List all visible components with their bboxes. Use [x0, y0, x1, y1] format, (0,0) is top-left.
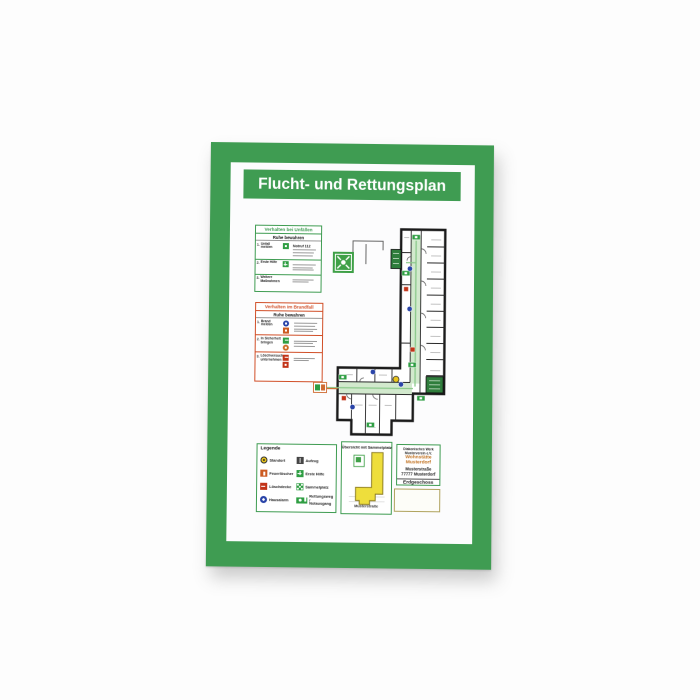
row-number: 3. — [257, 354, 260, 362]
legend-label: Rettungsweg /Notausgang — [309, 494, 333, 506]
text-line-placeholder — [294, 331, 314, 332]
street-label: Musterstraße — [354, 504, 378, 508]
text-line-placeholder — [293, 357, 314, 358]
standort-marker — [393, 376, 399, 382]
fire-extinguisher-icon — [283, 355, 289, 361]
row-number: 1. — [257, 320, 260, 328]
emergency-exit-icon — [283, 338, 289, 344]
row-label: Erste Hilfe — [261, 261, 277, 265]
assembly-point-mini-icon — [355, 457, 360, 462]
legend-label: Hausalarm — [269, 498, 289, 502]
facility-city: 77777 Musterdorf — [401, 471, 435, 477]
legend-item-hausalarm: Hausalarm — [260, 493, 293, 507]
text-line-placeholder — [293, 360, 309, 361]
text-line-placeholder — [293, 249, 316, 250]
neighbor-building-outline — [353, 241, 383, 264]
stairs-right — [426, 377, 443, 393]
empty-annotation-box — [394, 488, 441, 512]
product-photo-escape-plan: { "frame": { "title": "Flucht- und Rettu… — [0, 0, 700, 700]
row-label: Löschversuch unternehmen — [261, 354, 284, 362]
legend-label-line1: Rettungsweg / — [309, 494, 333, 502]
overview-box: Übersicht mit Sammelplatz Musterstraße — [340, 441, 392, 515]
text-line-placeholder — [293, 282, 309, 283]
row-number: 2. — [257, 261, 260, 265]
alarm-button-icon — [283, 320, 289, 326]
fire-blanket-icon — [260, 483, 267, 490]
elevator-icon — [296, 457, 303, 464]
direction-icon — [283, 345, 289, 351]
plan-title-banner: Flucht- und Rettungsplan — [243, 169, 460, 201]
stairs-left — [391, 249, 401, 268]
location-marker-icon — [260, 456, 267, 463]
legend-item-feuerloescher: Feuerlöscher — [260, 467, 293, 481]
row-number: 1. — [257, 242, 260, 250]
row-number: 3. — [256, 276, 259, 284]
fire-extinguisher-icon — [260, 470, 267, 477]
row-number: 2. — [257, 337, 260, 345]
text-line-placeholder — [293, 343, 313, 344]
fire-extinguisher-icon — [283, 362, 289, 368]
legend-label: Feuerlöscher — [269, 471, 293, 475]
legend-label: Löschdecke — [269, 484, 291, 488]
first-aid-cross-icon — [283, 261, 289, 267]
site-info-box: Diakonisches Werk Musterverein e.V. Wohn… — [396, 444, 441, 486]
assembly-point-sign — [333, 252, 354, 273]
text-line-placeholder — [293, 270, 314, 271]
legend-item-rettungsweg: Rettungsweg /Notausgang — [296, 493, 333, 507]
legend-label: Aufzug — [306, 458, 319, 462]
house-alarm-icon — [260, 496, 267, 503]
accident-instructions-box: Verhalten bei Unfällen Ruhe bewahren 1.U… — [254, 225, 322, 293]
row-label: Unfall melden — [261, 242, 281, 250]
row-label: In Sicherheit bringen — [261, 337, 281, 345]
text-line-placeholder — [293, 255, 313, 256]
floor-label: Erdgeschoss — [397, 478, 439, 486]
phone-green-icon — [283, 243, 289, 249]
accident-row-3: 3.Weitere Maßnahmen — [255, 273, 320, 286]
legend-label: Standort — [269, 458, 285, 462]
row-label: Weitere Maßnahmen — [260, 276, 280, 284]
legend-item-sammelplatz: Sammelplatz — [296, 480, 333, 494]
legend-grid: Standort Aufzug Feuerlöscher Erste Hilfe… — [260, 453, 333, 507]
first-aid-icon — [296, 470, 303, 477]
assembly-point-icon — [296, 483, 303, 490]
text-line-placeholder — [293, 346, 314, 347]
site-overview-map — [344, 449, 389, 506]
legend-title: Legende — [261, 446, 333, 452]
accident-row-1: 1.Unfall melden Notruf 112 — [256, 241, 321, 260]
text-line-placeholder — [293, 264, 316, 265]
duraframe-green-frame: Flucht- und Rettungsplan Verhalten bei U… — [206, 142, 494, 570]
escape-route-icon — [296, 497, 307, 503]
accident-row-2: 2.Erste Hilfe — [256, 259, 321, 275]
legend-item-standort: Standort — [260, 453, 293, 467]
text-line-placeholder — [294, 325, 315, 326]
legend-label-line2: Notausgang — [309, 502, 331, 506]
text-line-placeholder — [293, 252, 314, 253]
legend-item-erstehilfe: Erste Hilfe — [296, 467, 333, 481]
text-line-placeholder — [293, 279, 314, 280]
legend-item-aufzug: Aufzug — [296, 454, 333, 468]
text-line-placeholder — [293, 267, 313, 268]
legend-item-loeschdecke: Löschdecke — [260, 480, 293, 494]
phone-orange-icon — [283, 327, 289, 333]
legend-box: Legende Standort Aufzug Feuerlöscher Ers… — [256, 443, 337, 513]
legend-label: Sammelplatz — [305, 485, 328, 489]
legend-label: Erste Hilfe — [305, 472, 324, 476]
row-label: Brand melden — [261, 320, 281, 328]
escape-plan-document: Flucht- und Rettungsplan Verhalten bei U… — [226, 162, 475, 544]
floor-plan — [312, 221, 450, 440]
